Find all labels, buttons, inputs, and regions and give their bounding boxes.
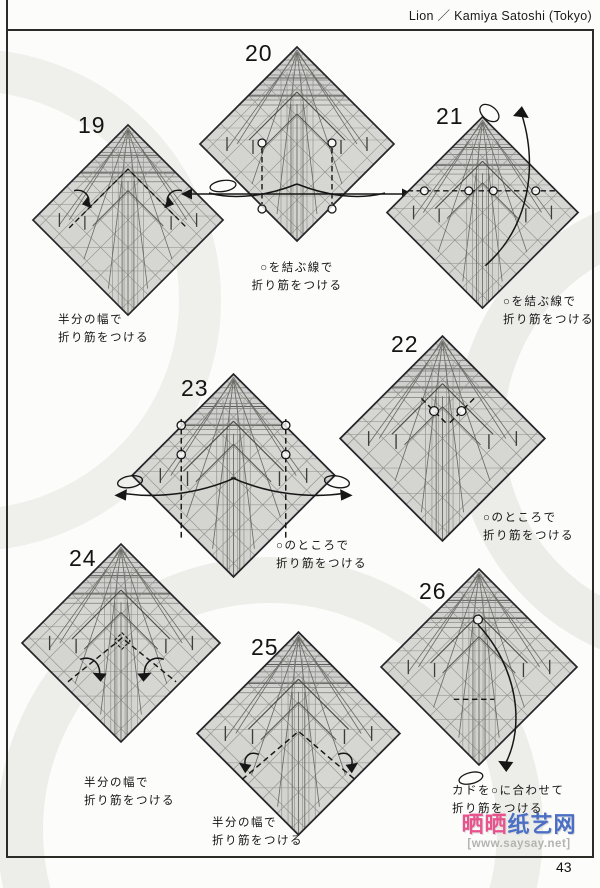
page-title: Lion ／ Kamiya Satoshi (Tokyo): [409, 5, 592, 24]
watermark-url: [www.saysay.net]: [446, 839, 592, 851]
circle-marker: [489, 187, 497, 195]
circle-marker: [328, 139, 336, 147]
watermark-part2: 纸艺: [507, 812, 553, 837]
watermark-logo: 晒晒纸艺网: [446, 814, 592, 836]
watermark-part3: 网: [554, 812, 577, 837]
unfold-loop-icon: [209, 179, 236, 194]
frame-left-line: [6, 0, 8, 29]
circle-marker: [420, 187, 428, 195]
site-watermark: 晒晒纸艺网 [www.saysay.net]: [446, 814, 592, 851]
step-caption-23: ○のところで 折り筋をつける: [276, 538, 367, 574]
circle-marker: [328, 205, 336, 213]
circle-marker: [258, 205, 266, 213]
circle-marker: [532, 187, 540, 195]
circle-marker: [430, 407, 439, 416]
page-number: 43: [556, 859, 572, 875]
watermark-part1: 晒晒: [461, 812, 507, 837]
circle-marker: [465, 187, 473, 195]
step-caption-20: ○を結ぶ線で 折り筋をつける: [227, 260, 367, 296]
step-caption-22: ○のところで 折り筋をつける: [483, 510, 574, 546]
circle-marker: [457, 407, 466, 416]
origami-diagram-21: [384, 114, 581, 311]
circle-marker: [282, 421, 290, 429]
origami-diagram-25: [194, 629, 403, 838]
origami-diagram-24: [19, 541, 223, 745]
step-caption-25: 半分の幅で 折り筋をつける: [212, 815, 303, 851]
step-caption-21: ○を結ぶ線で 折り筋をつける: [503, 294, 594, 330]
circle-marker: [258, 139, 266, 147]
step-caption-19: 半分の幅で 折り筋をつける: [58, 312, 149, 348]
circle-marker: [177, 450, 185, 458]
origami-diagram-26: [378, 566, 580, 768]
circle-marker: [177, 421, 185, 429]
origami-diagram-20: [197, 44, 397, 244]
book-page: Lion ／ Kamiya Satoshi (Tokyo) 19 半分の幅で 折…: [0, 0, 600, 888]
circle-marker: [474, 615, 483, 624]
step-caption-24: 半分の幅で 折り筋をつける: [84, 775, 175, 811]
circle-marker: [282, 450, 290, 458]
